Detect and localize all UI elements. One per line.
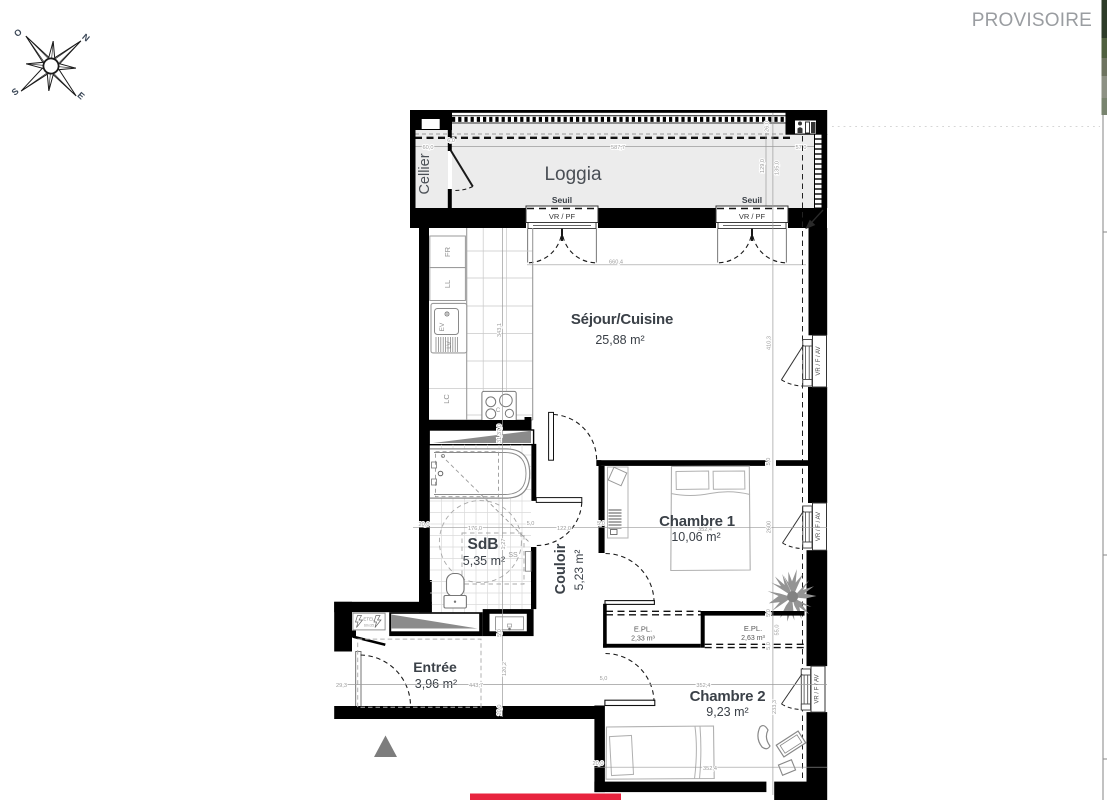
svg-text:C: C <box>496 408 501 414</box>
svg-text:Couloir: Couloir <box>553 543 569 594</box>
svg-text:25,88 m²: 25,88 m² <box>595 333 644 347</box>
svg-text:129,0: 129,0 <box>760 159 766 173</box>
svg-text:122,0: 122,0 <box>557 526 571 532</box>
svg-text:O: O <box>12 27 24 39</box>
svg-text:1,27: 1,27 <box>501 539 507 550</box>
svg-text:VR / F / AV: VR / F / AV <box>816 346 822 375</box>
svg-text:5,23 m²: 5,23 m² <box>572 550 586 591</box>
svg-text:LV: LV <box>446 341 453 349</box>
svg-text:5,0: 5,0 <box>766 642 772 650</box>
svg-text:5,0: 5,0 <box>600 676 608 682</box>
svg-text:EV: EV <box>439 322 446 331</box>
svg-text:2600: 2600 <box>767 521 773 533</box>
svg-text:VR / F / AV: VR / F / AV <box>816 512 822 541</box>
svg-text:352,4: 352,4 <box>696 683 710 689</box>
svg-text:E: E <box>75 90 86 101</box>
svg-text:VR / F / AV: VR / F / AV <box>814 674 820 703</box>
svg-text:S: S <box>10 86 21 98</box>
svg-text:Cellier: Cellier <box>417 153 433 194</box>
svg-text:5,0: 5,0 <box>597 521 605 527</box>
svg-text:57,0: 57,0 <box>796 145 807 151</box>
svg-text:20,0: 20,0 <box>497 705 503 716</box>
svg-text:5,0: 5,0 <box>766 609 772 617</box>
svg-text:Séjour/Cuisine: Séjour/Cuisine <box>571 311 673 328</box>
svg-text:2,33 m³: 2,33 m³ <box>631 636 655 643</box>
svg-text:135,0: 135,0 <box>775 161 781 175</box>
svg-text:20,0: 20,0 <box>593 761 604 767</box>
svg-text:6,0: 6,0 <box>447 138 455 144</box>
svg-text:Entrée: Entrée <box>413 659 457 675</box>
svg-text:31,3: 31,3 <box>497 432 503 443</box>
svg-text:176,0: 176,0 <box>468 526 482 532</box>
svg-text:5,0: 5,0 <box>497 629 503 637</box>
svg-text:VR / PF: VR / PF <box>739 212 766 221</box>
svg-text:410,3: 410,3 <box>767 336 773 350</box>
svg-text:26,0: 26,0 <box>765 121 771 132</box>
svg-text:SdB: SdB <box>468 536 499 553</box>
svg-text:E.PL.: E.PL. <box>744 624 762 633</box>
svg-text:29,3: 29,3 <box>336 683 347 689</box>
svg-text:SS: SS <box>508 552 518 559</box>
svg-text:ETEL: ETEL <box>363 617 375 622</box>
svg-text:5,35 m²: 5,35 m² <box>463 554 505 568</box>
svg-text:7,0: 7,0 <box>497 424 503 432</box>
svg-text:PROVISOIRE: PROVISOIRE <box>972 10 1092 31</box>
svg-text:N: N <box>80 32 91 44</box>
svg-text:233,3: 233,3 <box>772 700 778 714</box>
svg-text:343,1: 343,1 <box>497 323 503 337</box>
svg-text:5,0: 5,0 <box>766 458 772 466</box>
svg-text:FR: FR <box>443 246 452 257</box>
svg-text:120,2: 120,2 <box>502 662 508 676</box>
svg-text:LL: LL <box>443 280 452 288</box>
svg-text:10,06 m²: 10,06 m² <box>671 530 720 544</box>
svg-text:Seuil: Seuil <box>742 195 762 205</box>
svg-text:60x35: 60x35 <box>364 624 374 628</box>
svg-text:LC: LC <box>442 394 451 404</box>
svg-text:352,4: 352,4 <box>703 766 717 772</box>
svg-text:55,0: 55,0 <box>775 625 781 636</box>
svg-text:E.PL.: E.PL. <box>634 625 652 634</box>
svg-text:5,0: 5,0 <box>527 521 535 527</box>
svg-text:660,4: 660,4 <box>609 260 623 266</box>
svg-text:60,0: 60,0 <box>423 145 434 151</box>
svg-text:443,7: 443,7 <box>469 683 483 689</box>
svg-text:352,4: 352,4 <box>698 527 712 533</box>
svg-text:20,0: 20,0 <box>419 522 430 528</box>
svg-text:Loggia: Loggia <box>544 164 601 185</box>
svg-text:Seuil: Seuil <box>552 195 572 205</box>
svg-text:Chambre 2: Chambre 2 <box>690 688 766 705</box>
svg-text:9,23 m²: 9,23 m² <box>706 705 748 719</box>
svg-text:587,7: 587,7 <box>611 145 625 151</box>
svg-text:VR / PF: VR / PF <box>549 212 576 221</box>
svg-text:2,63 m³: 2,63 m³ <box>741 635 765 642</box>
svg-text:3,96 m²: 3,96 m² <box>415 677 457 691</box>
